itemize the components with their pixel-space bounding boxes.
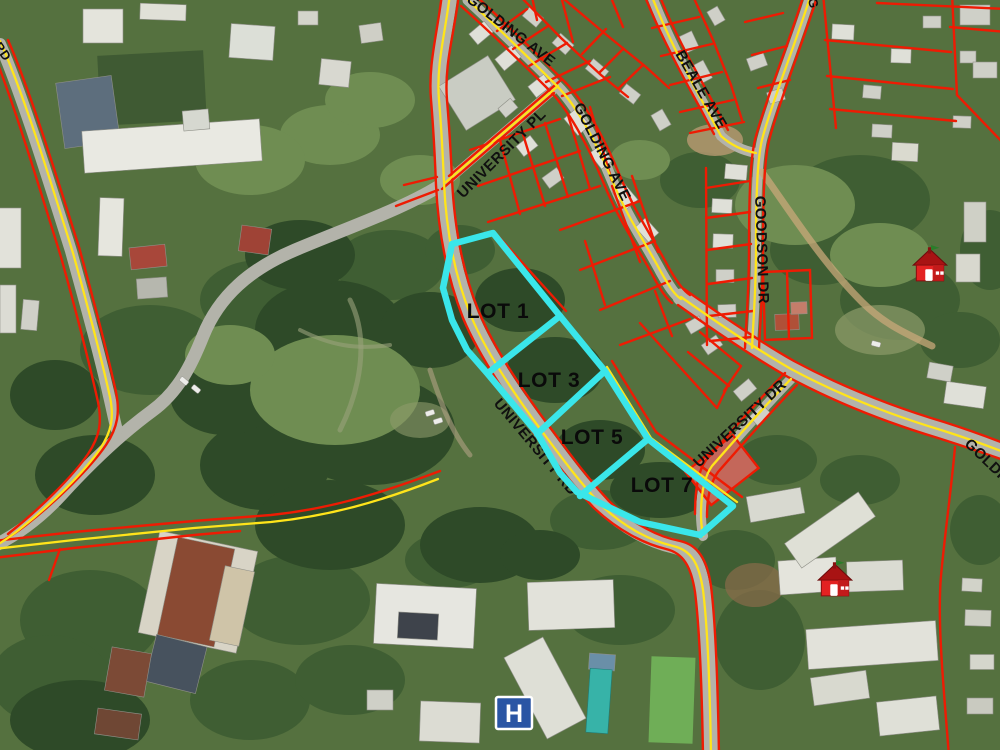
map-canvas[interactable]: GOLDING AVE GOLDING AVE BEALE AVE GOODSO… [0, 0, 1000, 750]
lot-label-5: LOT 5 [561, 426, 624, 449]
lot-label-3: LOT 3 [518, 369, 581, 392]
satellite-map[interactable]: GOLDING AVE GOLDING AVE BEALE AVE GOODSO… [0, 0, 1000, 750]
lot-label-1: LOT 1 [467, 300, 530, 323]
lot-label-7: LOT 7 [631, 474, 694, 497]
hospital-glyph: H [505, 700, 523, 728]
hospital-icon[interactable]: H [496, 697, 532, 729]
